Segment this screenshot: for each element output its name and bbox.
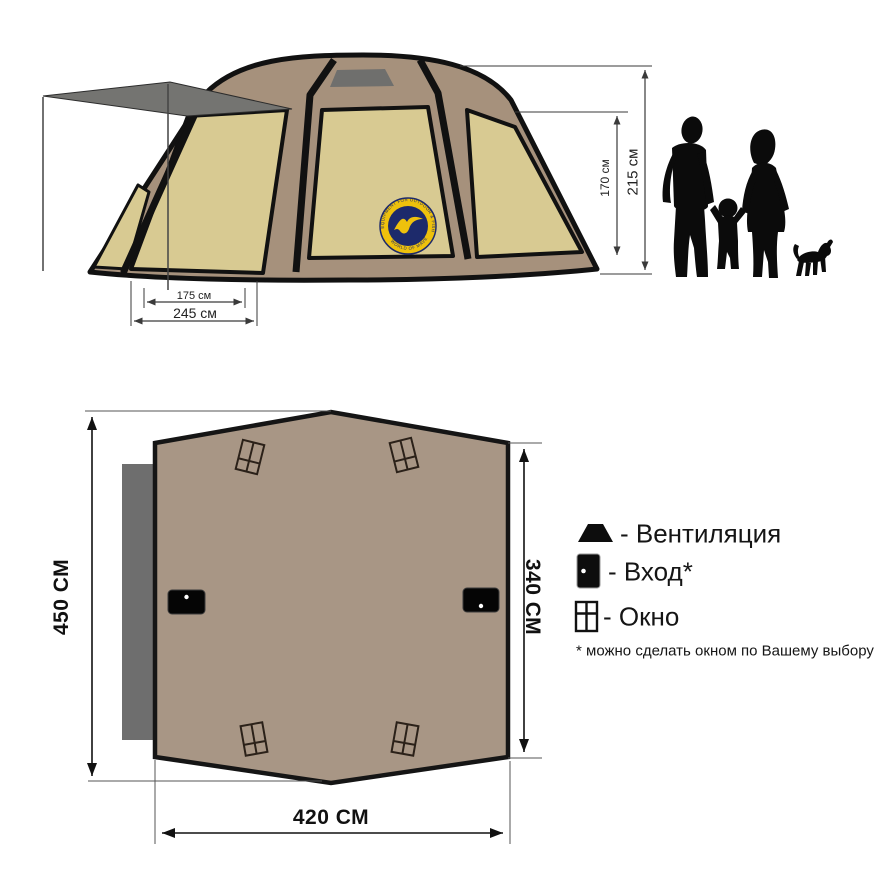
dim-215-label: 215 см	[625, 148, 642, 195]
tent-spec-diagram: EQUIPMENT FOR OUTDOOR & FISHING WORLD OF…	[0, 0, 875, 875]
dim-175-label: 175 см	[177, 290, 211, 302]
plan-awning-area	[122, 464, 153, 740]
ventilation-icon	[578, 524, 613, 542]
legend-ventilation-label: - Вентиляция	[620, 519, 781, 550]
plan-footprint	[155, 412, 508, 783]
plan-door-left	[168, 590, 205, 614]
woman-silhouette	[742, 129, 789, 278]
child-silhouette	[710, 199, 746, 270]
plan-door-right	[463, 588, 499, 612]
entrance-icon	[577, 554, 600, 588]
legend-window-label: - Окно	[603, 602, 679, 633]
plan-420-label: 420 СМ	[293, 806, 369, 830]
diagram-canvas: EQUIPMENT FOR OUTDOOR & FISHING WORLD OF…	[0, 0, 875, 875]
family-silhouette	[663, 115, 833, 278]
plan-450-label: 450 СМ	[50, 559, 74, 635]
dog-silhouette	[793, 239, 833, 276]
window-icon	[576, 602, 597, 631]
floor-plan	[85, 411, 542, 844]
side-view: EQUIPMENT FOR OUTDOOR & FISHING WORLD OF…	[0, 0, 833, 326]
roof-vent	[330, 69, 394, 87]
legend-footnote: * можно сделать окном по Вашему выбору	[576, 643, 874, 660]
dim-245-label: 245 см	[173, 305, 217, 321]
plan-340-label: 340 СМ	[520, 559, 544, 635]
dim-170-label: 170 см	[598, 159, 612, 197]
legend-entrance-label: - Вход*	[608, 557, 693, 588]
man-silhouette	[663, 115, 714, 277]
